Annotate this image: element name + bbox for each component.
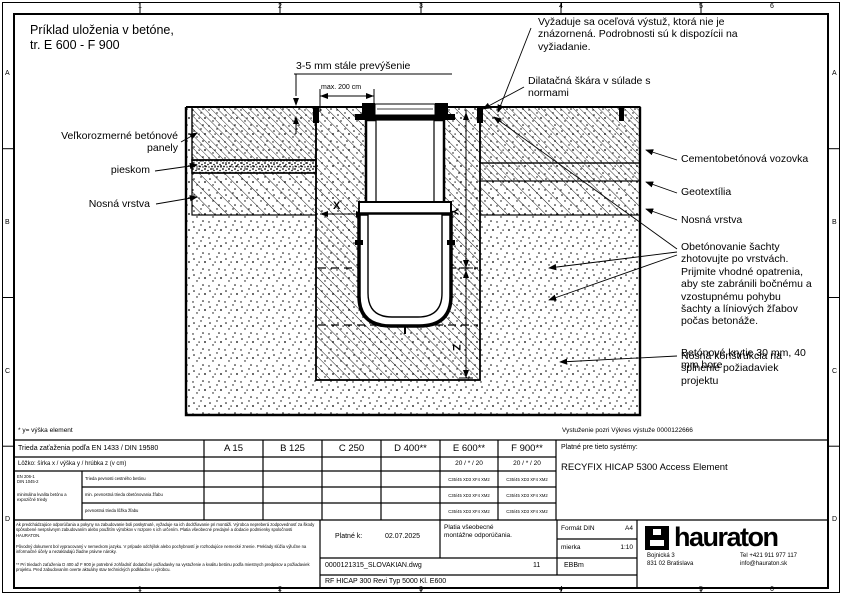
company-address2: 831 02 Bratislava (647, 561, 693, 568)
dim-z-label: Z (449, 344, 462, 351)
concrete-row3-label: pevnostná trieda lôžka žľabu (85, 508, 201, 513)
annotation-steel: Vyžaduje sa oceľová výstuž, ktorá nie je… (538, 16, 808, 53)
fine-print-1: Ak predchádzajúce odporúčania a pokyny n… (16, 522, 316, 538)
valid-label: Platné k: (335, 533, 362, 541)
class-f900: F 900** (498, 443, 556, 454)
page-title: Príklad uloženia v betóne, tr. E 600 - F… (30, 23, 174, 53)
concrete-row1-label: Trieda pevnosti cestného betónu (85, 476, 201, 481)
zone-a-left: A (5, 70, 10, 78)
systems-value: RECYFIX HICAP 5300 Access Element (561, 462, 728, 473)
bedding-e600: 20 / * / 20 (440, 460, 498, 468)
ruler-col-4b: 4 (526, 586, 596, 594)
annotation-encase: Obetónovanie šachty zhotovujte po vrstvá… (681, 241, 836, 328)
file-name: 0000121315_SLOVAKIAN.dwg (325, 562, 422, 570)
hauraton-wordmark: hauraton (674, 524, 778, 551)
company-address1: Bojnická 3 (647, 553, 675, 560)
dim-x-label: X (333, 200, 340, 213)
scale-label: mierka (561, 544, 581, 552)
format-value: A4 (605, 525, 633, 533)
reinforcement-note: Vystuženie pozri Výkres výstuže 00001226… (562, 427, 693, 435)
systems-label: Platné pre tieto systémy: (561, 444, 638, 452)
zone-c-left: C (5, 368, 10, 376)
ruler-col-3: 3 (386, 3, 456, 11)
valid-date: 02.07.2025 (385, 533, 420, 541)
annotation-joint: Dilatačná škára v súlade s normami (528, 75, 738, 100)
annotation-panels: Veľkorozmerné betónové panely (28, 130, 178, 155)
annotation-geotextile: Geotextília (681, 186, 731, 198)
dim-y-label: Y (447, 208, 460, 215)
class-b125: B 125 (263, 443, 322, 454)
value-r1-e600: C35/45 XD3 XF4 XM2 (440, 477, 498, 482)
table-load-class-label: Trieda zaťaženia podľa EN 1433 / DIN 195… (18, 445, 202, 453)
ruler-col-5b: 5 (666, 586, 736, 594)
sheet-number: 11 (533, 562, 540, 570)
ruler-col-6: 6 (737, 3, 807, 11)
annotation-structure: Nosná konštrukcia na splnenie požiadavie… (681, 350, 836, 387)
ruler-col-4: 4 (526, 3, 596, 11)
class-e600: E 600** (440, 443, 498, 454)
annotation-base-right: Nosná vrstva (681, 214, 742, 226)
ruler-col-2b: 2 (245, 586, 315, 594)
format-label: Formát DIN (561, 525, 595, 533)
bedding-label: Lôžko: šírka x / výška y / hrúbka z (v c… (18, 461, 202, 468)
zone-b-right: B (832, 219, 837, 227)
ruler-col-6b: 6 (737, 586, 807, 594)
ruler-col-1: 1 (105, 3, 175, 11)
code: EBBm (564, 562, 584, 570)
general-note: Platia všeobecné montážne odporúčania. (444, 524, 554, 539)
annotation-road: Cementobetónová vozovka (681, 153, 808, 165)
footnote: * y= výška element (18, 427, 73, 435)
class-d400: D 400** (381, 443, 440, 454)
ruler-col-2: 2 (245, 3, 315, 11)
annotation-sand: pieskom (60, 164, 150, 176)
value-r1-f900: C35/45 XD3 XF4 XM2 (498, 477, 556, 482)
bedding-f900: 20 / * / 20 (498, 460, 556, 468)
ruler-col-5: 5 (666, 3, 736, 11)
norm-label: EN 206-1 DIN 1045-2 (17, 474, 79, 485)
drawing-sheet: 1 2 3 4 5 6 1 2 3 4 5 6 A B C D A B C D … (0, 0, 842, 595)
annotation-top-dim: 3-5 mm stále prevýšenie (296, 60, 410, 72)
company-email: info@hauraton.sk (740, 561, 787, 568)
zone-b-left: B (5, 219, 10, 227)
drawing-title: RF HICAP 300 Revi Typ 5000 Kl. E600 (325, 578, 446, 586)
scale-value: 1:10 (605, 544, 633, 552)
value-r2-f900: C35/45 XD3 XF4 XM2 (498, 493, 556, 498)
norm-sub: minimálna kvalita betónu a expozičné tri… (17, 492, 79, 503)
fine-print-3: ** Pri triedach zaťaženia D 400 až F 900… (16, 562, 316, 573)
value-r2-e600: C35/45 XD3 XF4 XM2 (440, 493, 498, 498)
value-r3-e600: C35/45 XD3 XF4 XM2 (440, 509, 498, 514)
ruler-col-3b: 3 (386, 586, 456, 594)
zone-d-right: D (832, 516, 837, 524)
zone-a-right: A (832, 70, 837, 78)
value-r3-f900: C35/45 XD3 XF4 XM2 (498, 509, 556, 514)
company-tel: Tel +421 911 977 117 (740, 553, 797, 560)
concrete-row2-label: min. pevnostná trieda obetónovania žľabu (85, 492, 201, 497)
annotation-base-left: Nosná vrstva (50, 198, 150, 210)
class-c250: C 250 (322, 443, 381, 454)
zone-d-left: D (5, 516, 10, 524)
hauraton-logo-icon (645, 526, 669, 550)
ruler-col-1b: 1 (105, 586, 175, 594)
fine-print-2: Pôvodný dokument bol vypracovaný v nemec… (16, 544, 316, 555)
class-a15: A 15 (204, 443, 263, 454)
annotation-max-dim: max. 200 cm (321, 84, 361, 92)
